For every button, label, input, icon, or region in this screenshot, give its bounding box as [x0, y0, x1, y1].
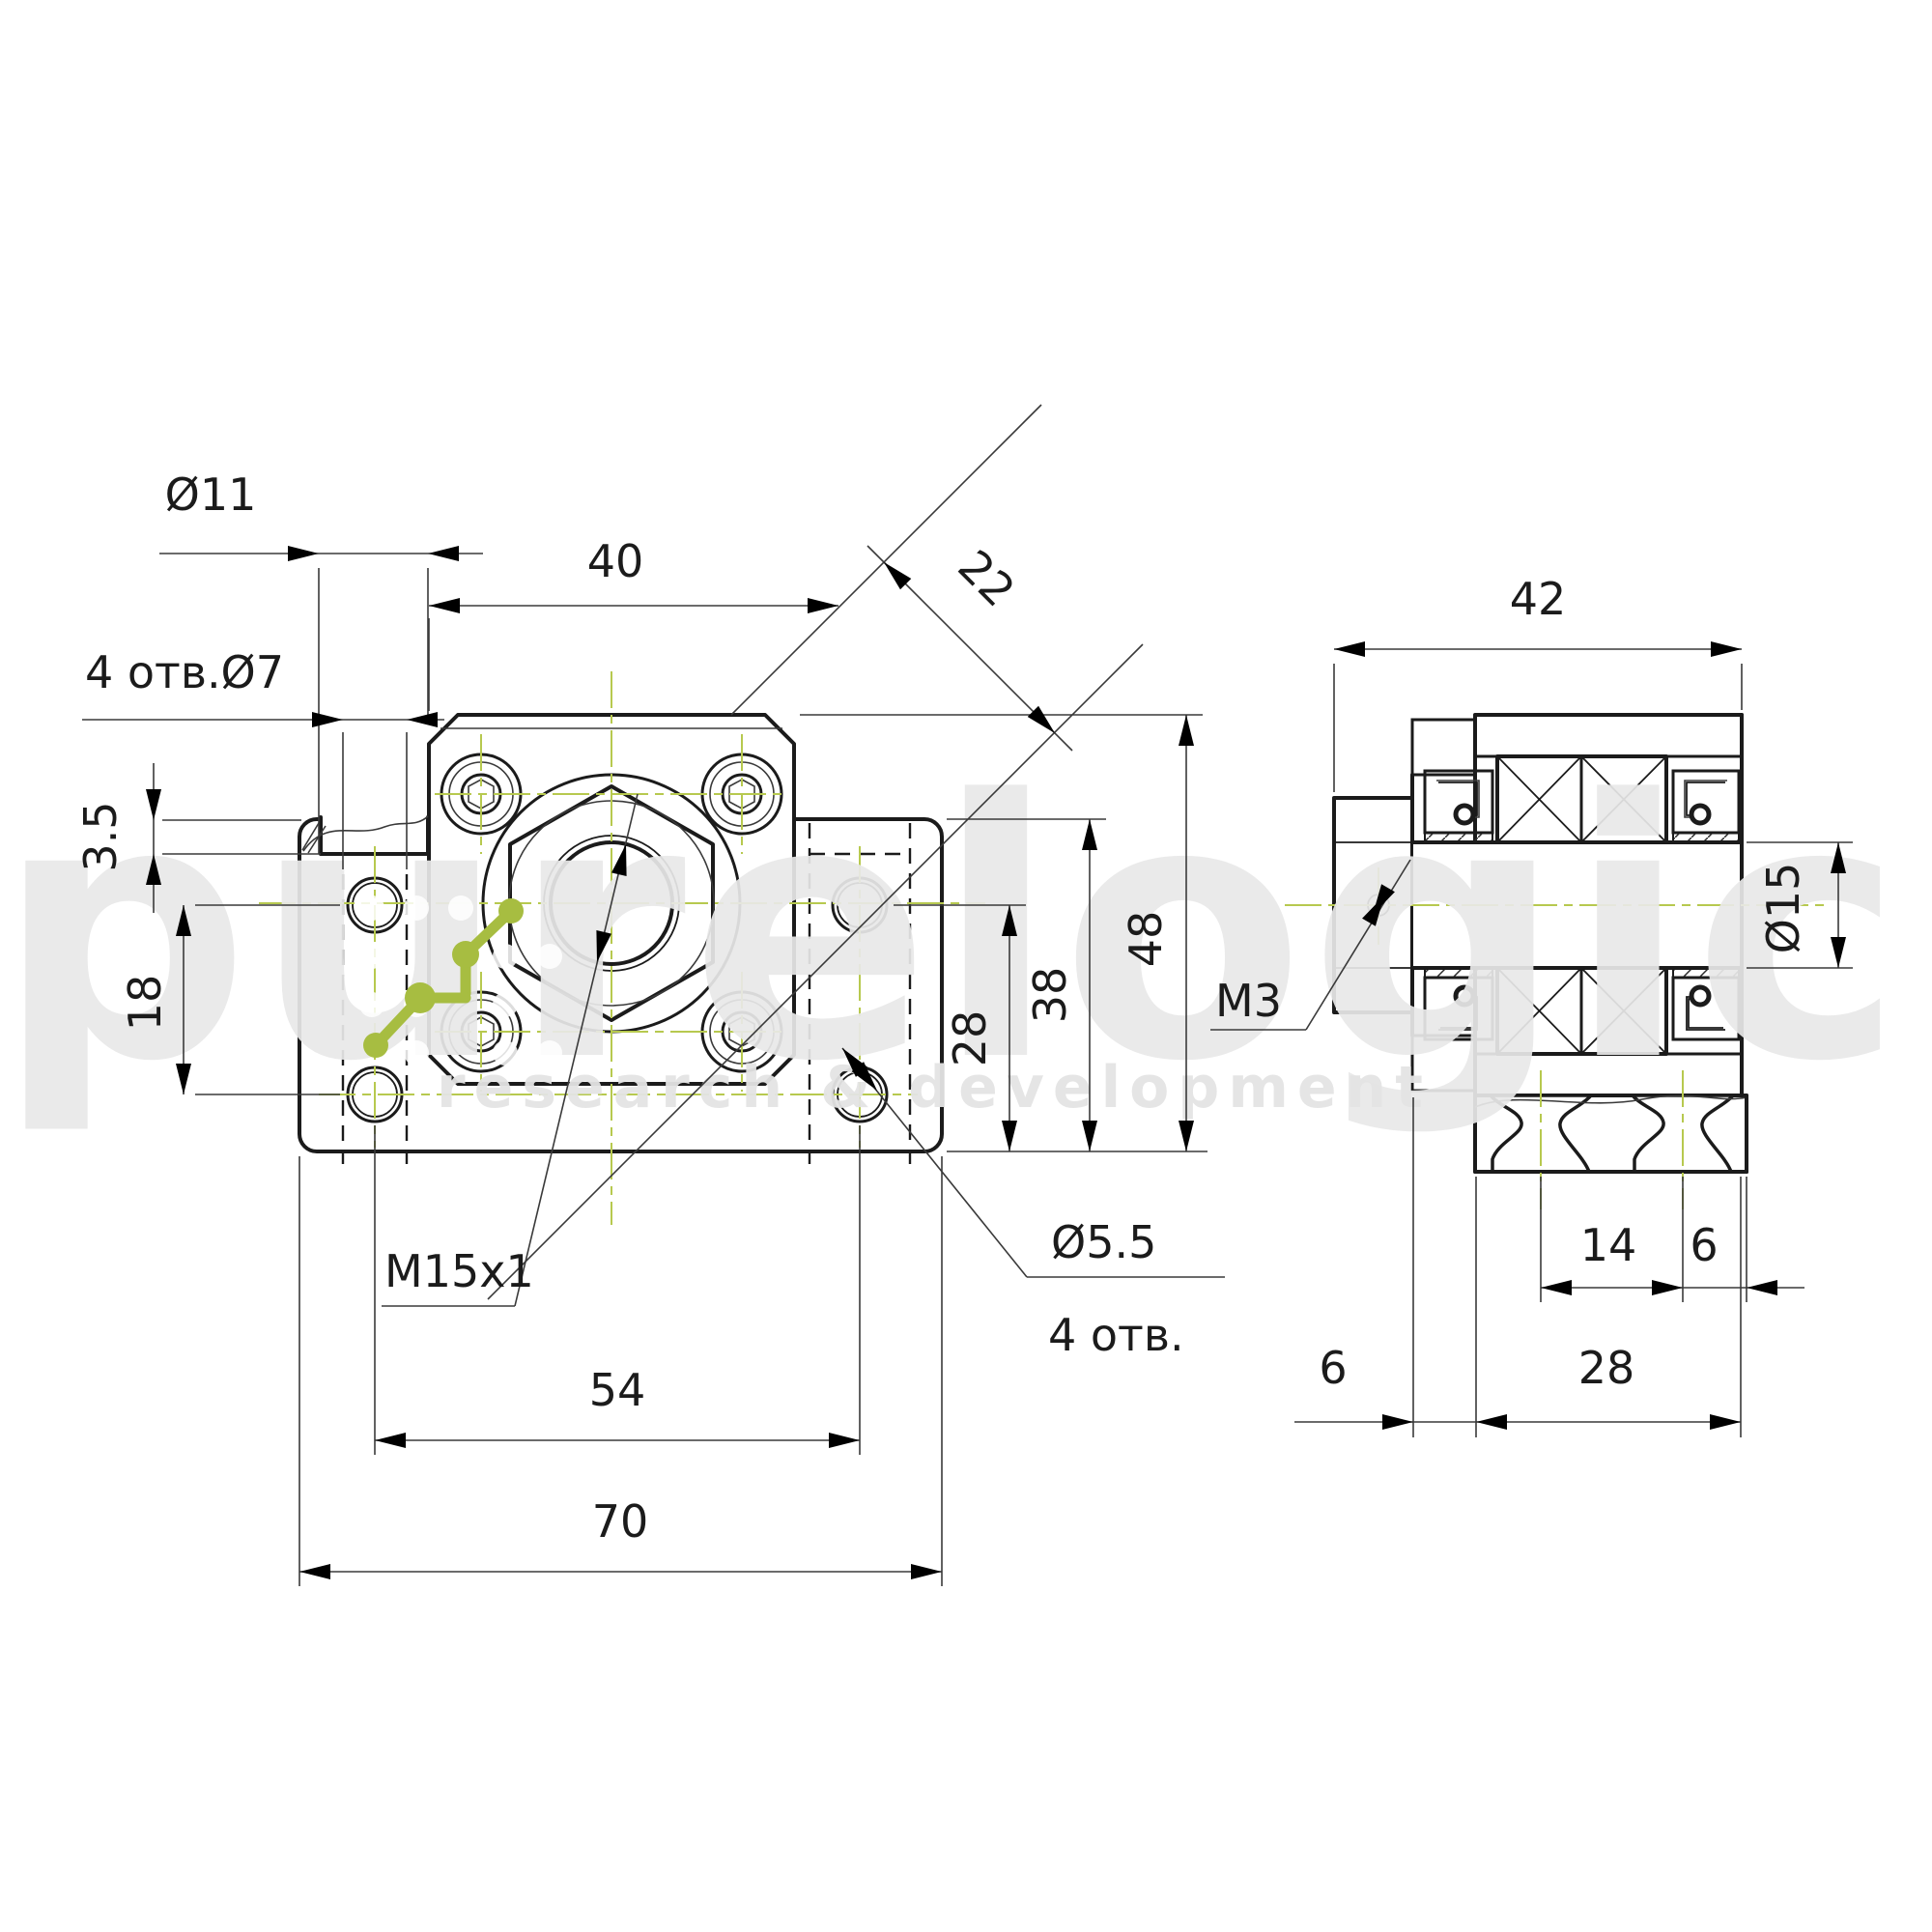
dim-label-h48: 48 — [1120, 911, 1172, 968]
logo-node — [498, 898, 524, 923]
dim-label-h28: 28 — [944, 1010, 996, 1067]
dim-label-flange-width: 40 — [587, 535, 644, 587]
dim-label-small-holes-count: 4 отв. — [1048, 1309, 1184, 1361]
dim-label-pitch-v: 18 — [119, 975, 171, 1032]
dim-label-edge-offset: 6 — [1690, 1219, 1718, 1271]
dim-label-small-holes: Ø5.5 — [1051, 1216, 1156, 1268]
dim-label-step: 3.5 — [74, 801, 127, 871]
logo-node — [405, 982, 436, 1013]
dim-label-total-depth: 42 — [1510, 573, 1567, 625]
dim-label-thread: M15x1 — [384, 1245, 534, 1297]
dim-label-collar-thickness: 6 — [1319, 1342, 1347, 1394]
logo-node — [452, 941, 479, 968]
dim-label-body-depth: 28 — [1578, 1342, 1635, 1394]
dim-label-base-width: 70 — [592, 1495, 649, 1548]
dim-label-hole-pitch: 14 — [1580, 1219, 1637, 1271]
dim-label-set-screw: M3 — [1215, 975, 1282, 1027]
logo-node — [363, 1033, 388, 1058]
dim-label-base-holes: 4 отв.Ø7 — [85, 646, 284, 698]
dim-label-shaft-bore: Ø15 — [1757, 863, 1809, 954]
technical-drawing-ballscrew-support: purelogic research & development Ø11 — [0, 0, 1932, 1932]
dim-label-pitch-h: 54 — [589, 1364, 646, 1416]
watermark-subtitle: research & development — [437, 1054, 1432, 1122]
dim-label-h38: 38 — [1024, 967, 1076, 1024]
watermark: purelogic research & development — [0, 724, 1908, 1139]
dim-label-counterbore: Ø11 — [165, 469, 257, 521]
